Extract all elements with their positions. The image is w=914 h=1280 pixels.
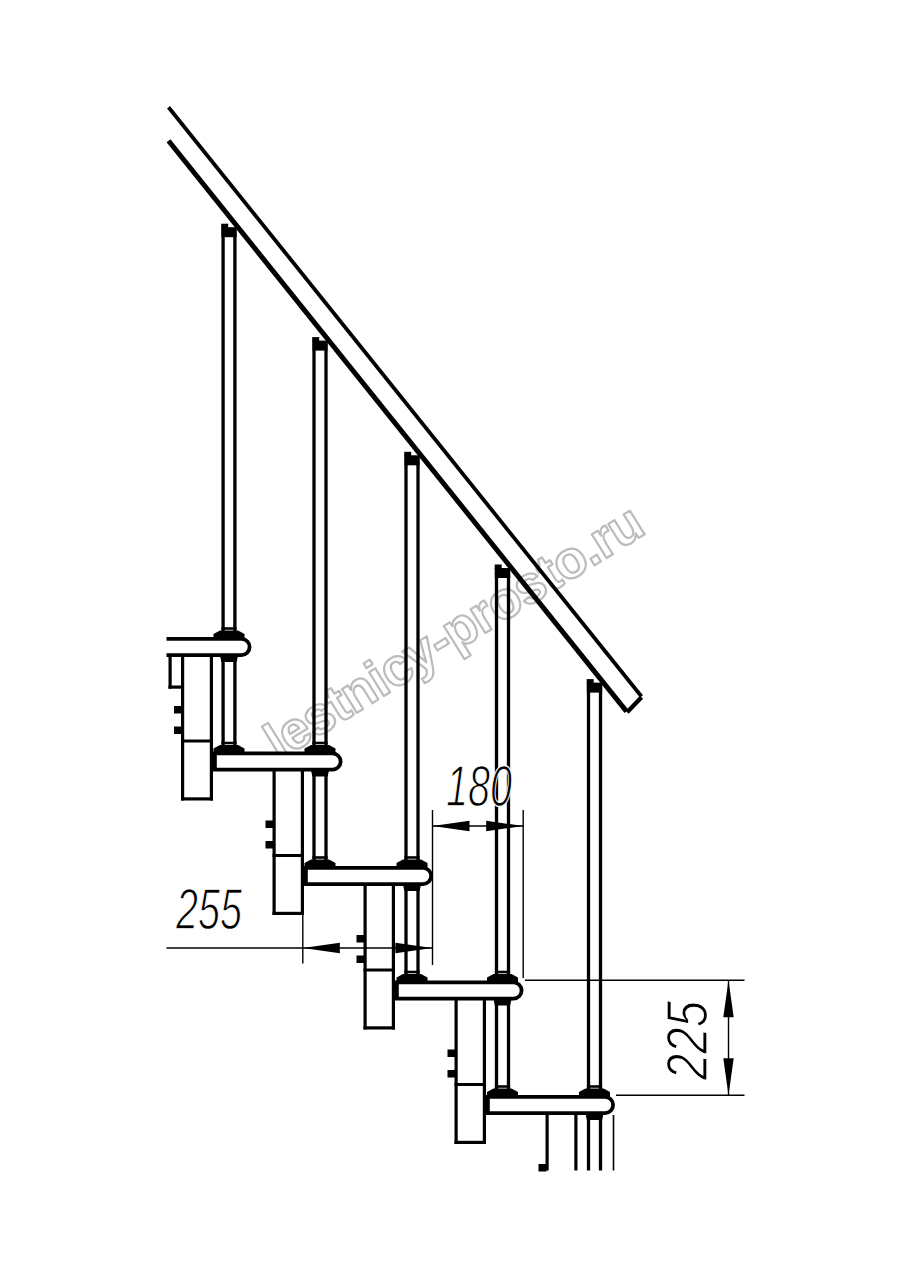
svg-text:225: 225 bbox=[655, 1001, 719, 1081]
svg-text:255: 255 bbox=[175, 877, 242, 941]
svg-text:180: 180 bbox=[446, 754, 512, 818]
